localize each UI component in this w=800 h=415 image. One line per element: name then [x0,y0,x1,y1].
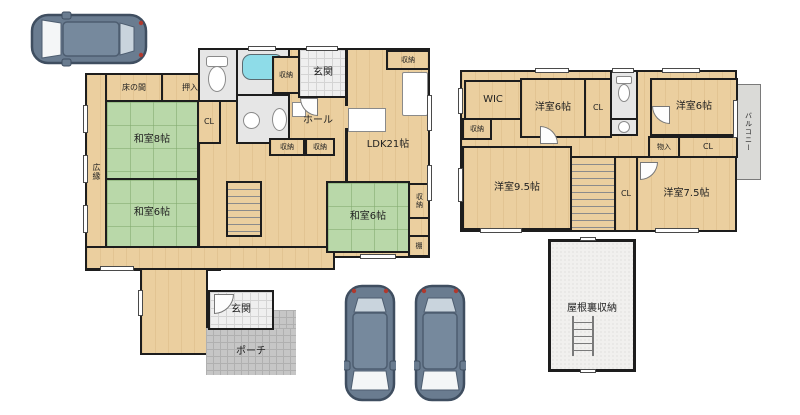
car-icon-right [414,283,466,403]
window-marker [580,237,596,241]
window-marker [580,369,596,373]
car-icon-left [344,283,396,403]
room-label-attic: 屋根裏収納 [567,303,617,314]
room-label-attic-wrap: 屋根裏収納 [548,296,636,315]
car-icon-top [28,10,150,68]
ladder-icon [572,316,594,356]
floorplan-canvas: 床の間 押入 和室8帖 CL 和室6帖 広縁 収納 玄関 [0,0,800,415]
